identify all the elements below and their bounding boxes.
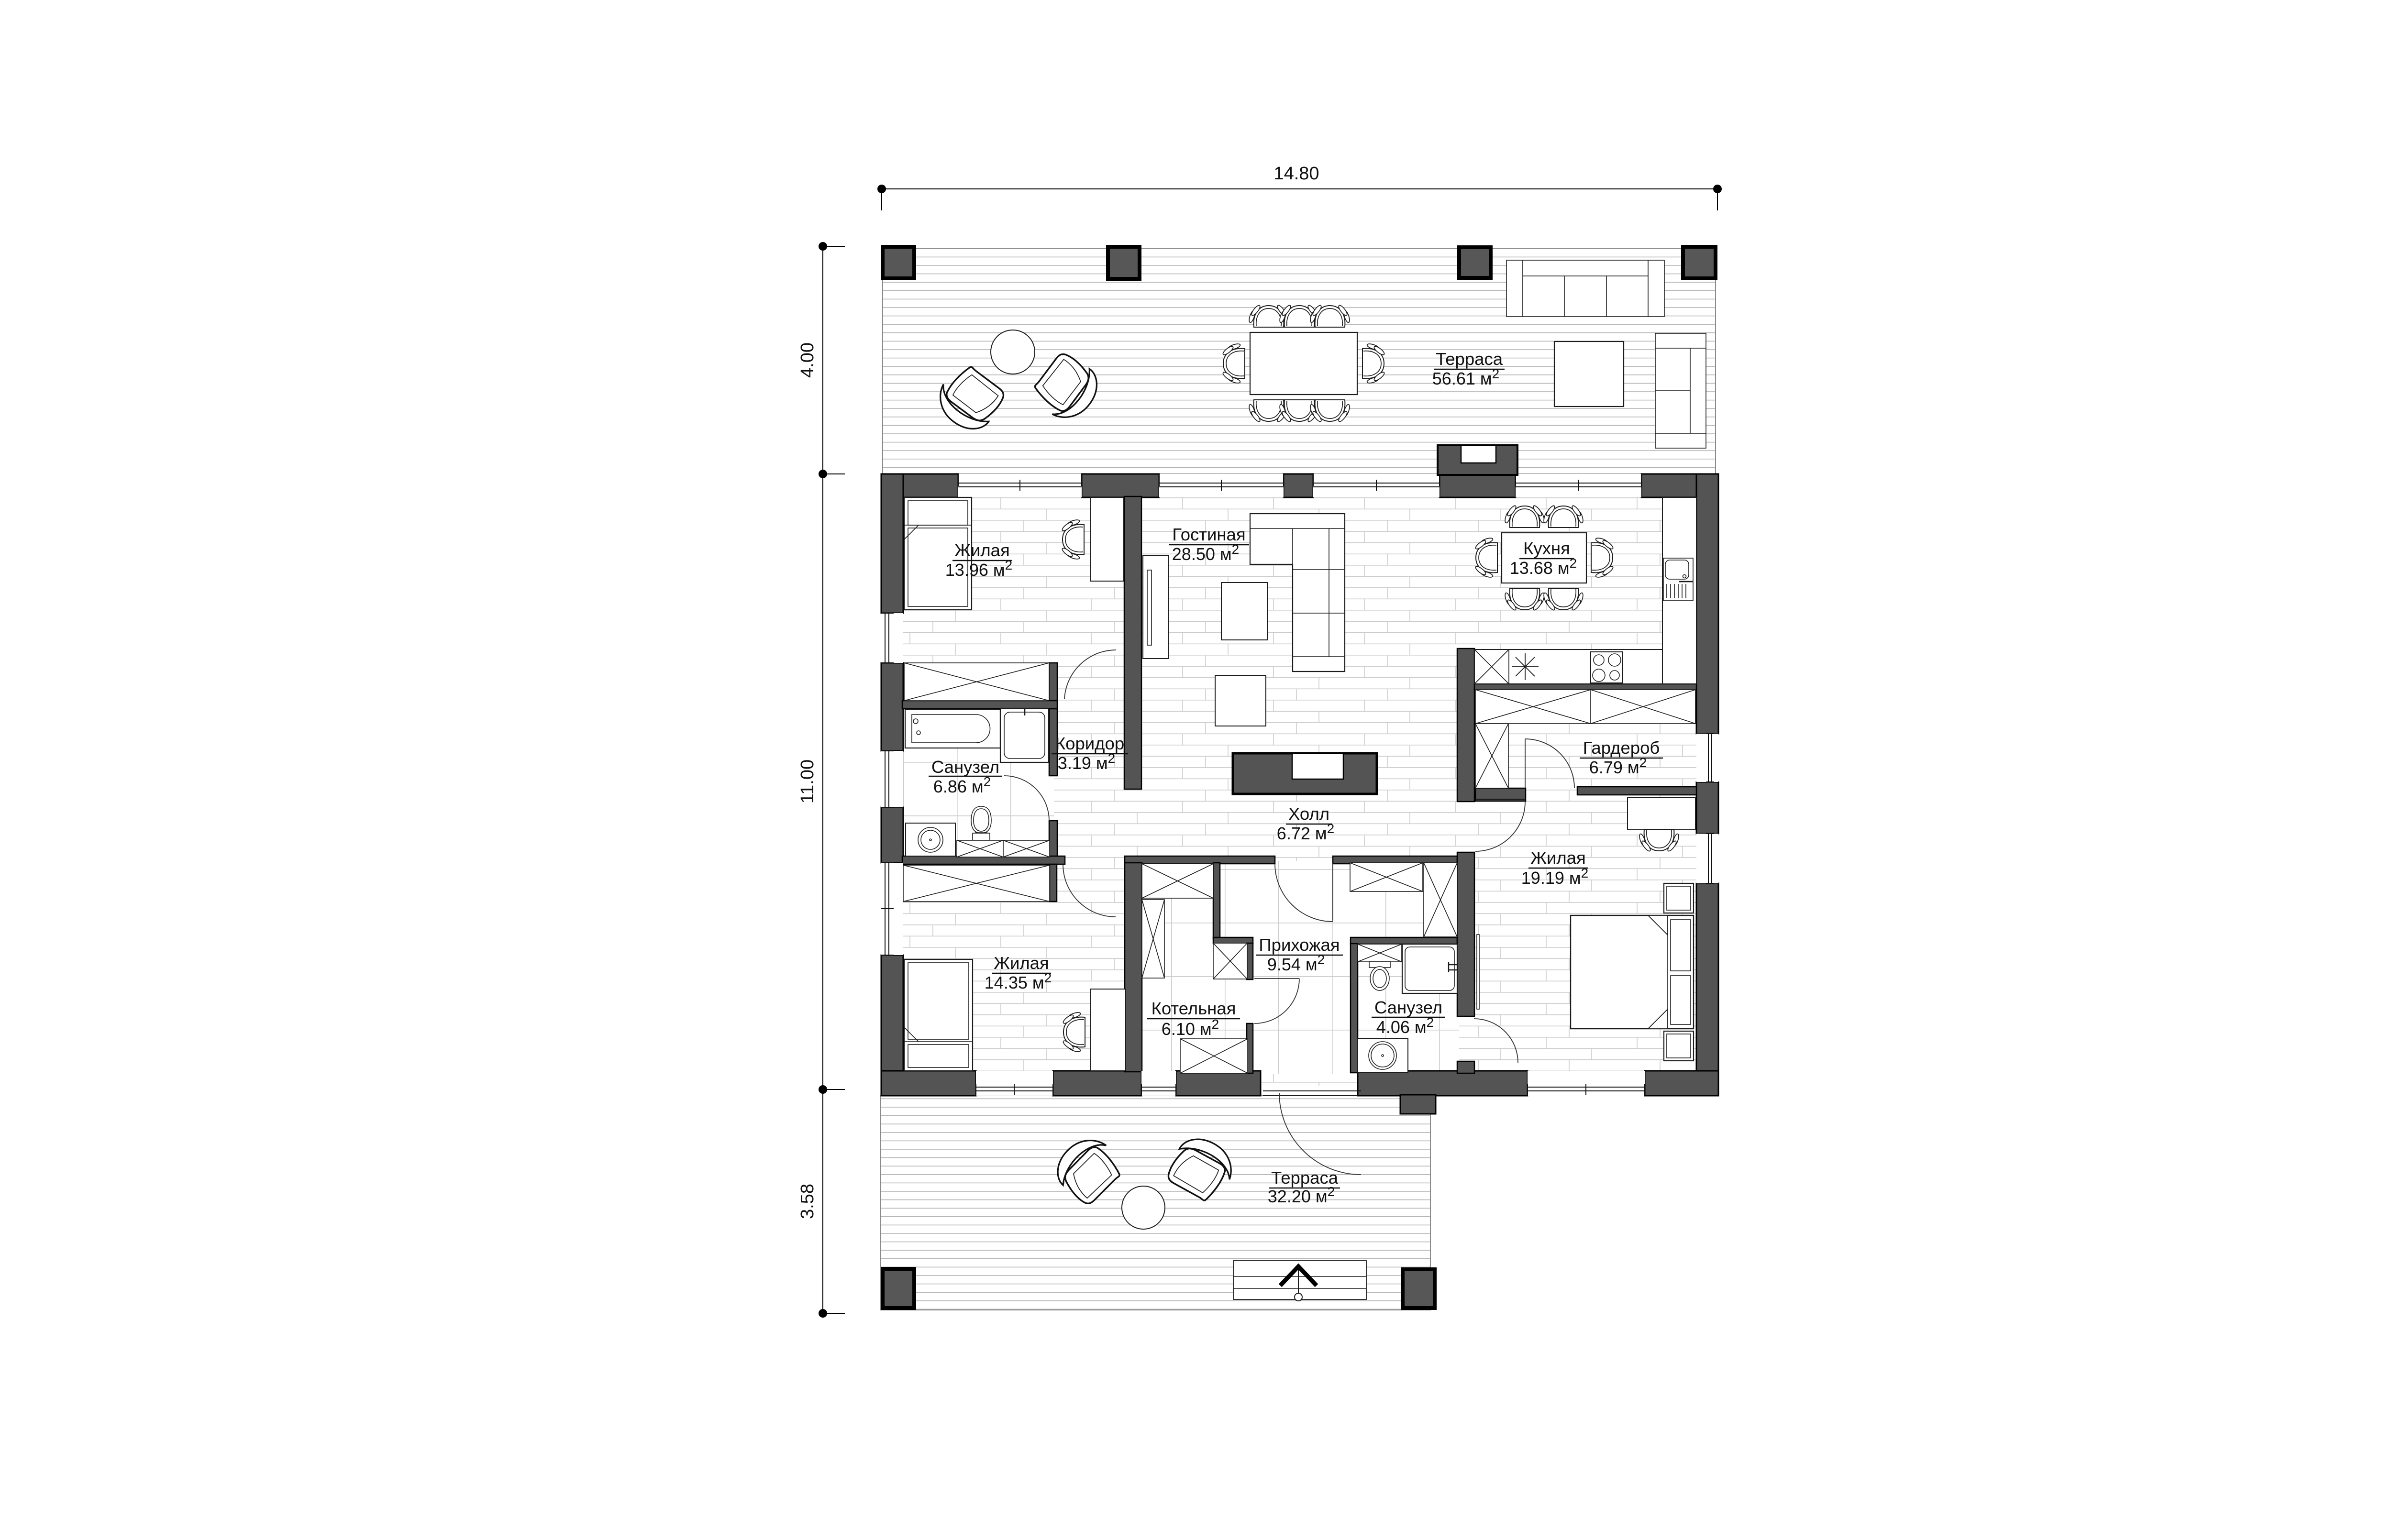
svg-text:11.00: 11.00 [797, 759, 818, 803]
svg-text:4.06 м2: 4.06 м2 [1376, 1015, 1434, 1037]
svg-text:3.58: 3.58 [797, 1184, 818, 1219]
svg-text:14.80: 14.80 [1274, 164, 1319, 184]
svg-text:Котельная: Котельная [1152, 999, 1236, 1018]
svg-text:32.20 м2: 32.20 м2 [1268, 1184, 1335, 1206]
svg-text:Санузел: Санузел [931, 757, 999, 777]
svg-text:Гардероб: Гардероб [1583, 738, 1660, 758]
svg-text:Санузел: Санузел [1374, 998, 1442, 1017]
svg-text:Коридор: Коридор [1055, 734, 1124, 753]
svg-text:13.96 м2: 13.96 м2 [945, 558, 1012, 580]
svg-text:6.79 м2: 6.79 м2 [1589, 755, 1647, 777]
svg-text:13.68 м2: 13.68 м2 [1510, 556, 1577, 578]
svg-text:6.72 м2: 6.72 м2 [1277, 821, 1334, 843]
svg-text:Холл: Холл [1288, 804, 1329, 824]
svg-text:Кухня: Кухня [1523, 539, 1570, 558]
svg-text:19.19 м2: 19.19 м2 [1521, 866, 1588, 888]
svg-text:Жилая: Жилая [994, 953, 1049, 973]
svg-text:Гостиная: Гостиная [1172, 525, 1245, 544]
svg-text:6.86 м2: 6.86 м2 [933, 774, 991, 796]
svg-text:Жилая: Жилая [1530, 848, 1585, 868]
svg-text:Терраса: Терраса [1436, 349, 1503, 369]
svg-text:9.54 м2: 9.54 м2 [1267, 952, 1325, 974]
svg-text:14.35 м2: 14.35 м2 [985, 970, 1052, 992]
svg-text:4.00: 4.00 [797, 342, 818, 378]
svg-text:Прихожая: Прихожая [1259, 935, 1340, 955]
svg-text:28.50 м2: 28.50 м2 [1172, 542, 1239, 564]
svg-text:3.19 м2: 3.19 м2 [1058, 751, 1115, 773]
svg-text:Жилая: Жилая [954, 540, 1009, 560]
svg-text:56.61 м2: 56.61 м2 [1432, 366, 1499, 388]
svg-text:6.10 м2: 6.10 м2 [1162, 1017, 1219, 1039]
